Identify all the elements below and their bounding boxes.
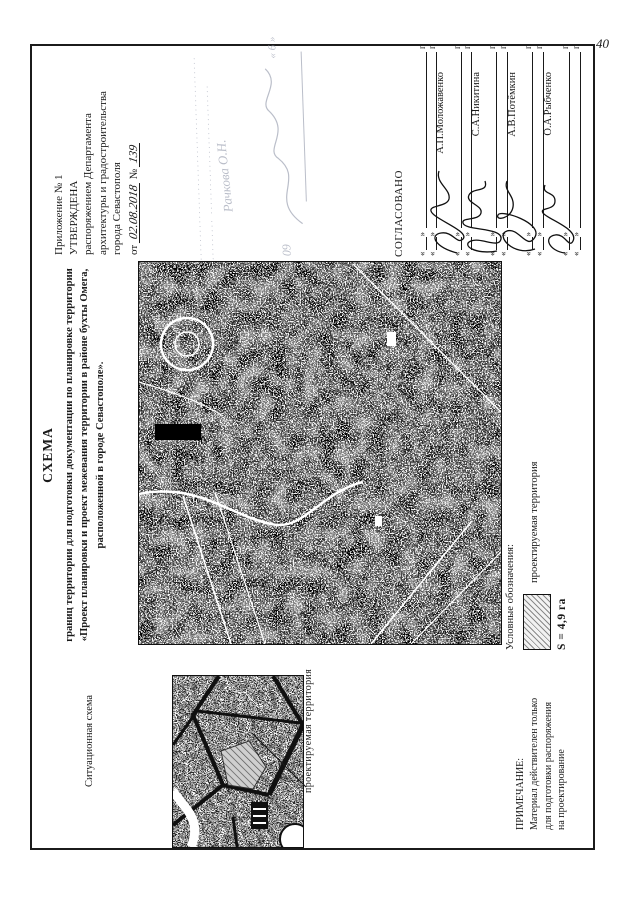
approval-line: архитектуры и градостроительства: [96, 47, 111, 255]
building-icon: [251, 802, 268, 829]
pointer-line: [250, 727, 308, 791]
legend-item-label: проектируемая территория: [529, 462, 540, 584]
title-line: границ территории для подготовки докумен…: [62, 243, 77, 667]
situational-label: Ситуационная схема: [84, 695, 95, 787]
note-block: ПРИМЕЧАНИЕ: Материал действителен только…: [514, 698, 569, 830]
approval-line: города Севастополя: [110, 47, 125, 255]
signer-name: С.А.Никитина: [471, 72, 482, 136]
note-heading: ПРИМЕЧАНИЕ:: [514, 698, 528, 830]
approval-line: распоряжением Департамента: [81, 47, 96, 255]
stamp-flourish-icon: [255, 61, 313, 233]
note-line: Материал действителен только: [528, 698, 542, 830]
doc-title-block: СХЕМА границ территории для подготовки д…: [40, 243, 108, 667]
date-prefix: от: [128, 245, 140, 255]
date-line: «»г.: [561, 44, 570, 257]
stamp-date: 09: [279, 244, 294, 257]
approval-line: Приложение № 1: [52, 47, 67, 255]
approval-block: Приложение № 1 УТВЕРЖДЕНА распоряжением …: [52, 47, 141, 255]
approval-line: УТВЕРЖДЕНА: [67, 47, 82, 255]
stamp-quote: « 6 »: [266, 36, 279, 58]
stamp-block: ········································…: [188, 33, 336, 266]
pointer-label: проектируемая территория: [303, 669, 314, 793]
title-line: расположенной в городе Севастополе».: [93, 243, 108, 667]
soglasovano-block: СОГЛАСОВАНО «»г. «»г. А.П.Моложавенко «»…: [393, 44, 589, 257]
aerial-map-svg: [139, 262, 501, 644]
title-line: «Проект планировки и проект межевания те…: [77, 243, 92, 667]
page-title: СХЕМА: [40, 243, 56, 667]
signer-name: О.А.Рыбченко: [543, 72, 554, 136]
approval-date-line: от 02.08.2018 № 139: [127, 47, 142, 255]
legend-swatch: [523, 594, 551, 650]
soglasovano-heading: СОГЛАСОВАНО: [393, 170, 405, 257]
number-prefix: №: [128, 169, 140, 180]
signer-name: А.В.Потёмкин: [507, 72, 518, 137]
legend-heading: Условные обозначения:: [505, 544, 516, 650]
legend-area-value: S = 4,9 га: [556, 598, 568, 650]
handwritten-number: 139: [127, 141, 140, 167]
note-line: для подготовки распоряжения: [542, 698, 556, 830]
aerial-map-image: [138, 261, 502, 645]
document-sheet: Приложение № 1 УТВЕРЖДЕНА распоряжением …: [0, 0, 629, 905]
handwritten-date: 02.08.2018: [127, 181, 140, 243]
date-line: «»г.: [572, 44, 581, 257]
note-line: на проектирование: [555, 698, 569, 830]
